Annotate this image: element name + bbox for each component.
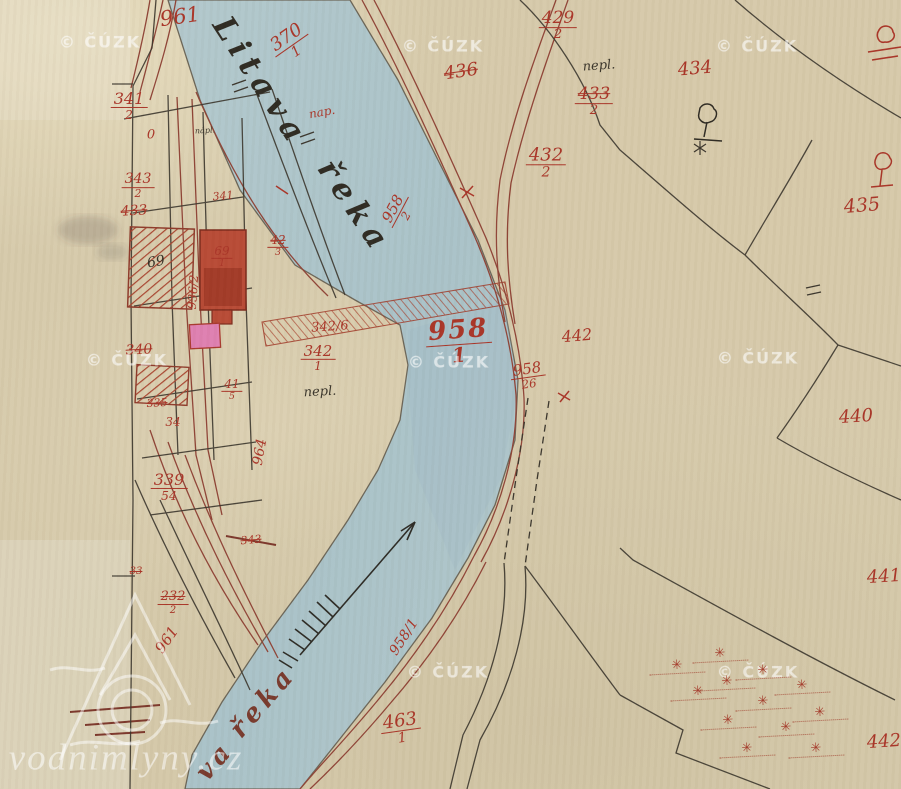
cuzk-watermark: © ČÚZK bbox=[408, 353, 490, 372]
parcel-label: 343 bbox=[240, 534, 262, 547]
parcel-label: 4322 bbox=[526, 146, 566, 179]
parcel-label: 961 bbox=[159, 4, 202, 30]
parcel-label: nápl. bbox=[195, 126, 216, 135]
parcel-label: 440 bbox=[838, 407, 874, 427]
parcel-label: 0 bbox=[147, 129, 155, 142]
parcel-label: 3421 bbox=[301, 344, 336, 372]
cuzk-watermark: © ČÚZK bbox=[717, 349, 799, 368]
parcel-label: 435 bbox=[843, 195, 881, 217]
parcel-label: 341 bbox=[212, 190, 234, 203]
parcel-label: 69 bbox=[146, 254, 166, 271]
parcel-label: 95826 bbox=[509, 360, 547, 393]
parcel-label: 4631 bbox=[379, 710, 424, 749]
parcel-label: 34 bbox=[165, 416, 180, 428]
parcel-label: nepl. bbox=[303, 385, 336, 400]
parcel-label: 936/2 bbox=[186, 274, 200, 309]
bush-icon: ✳ bbox=[670, 685, 727, 702]
bush-icon: ✳ bbox=[788, 742, 845, 759]
bush-icon: ✳ bbox=[719, 742, 776, 759]
bush-icon: ✳ bbox=[649, 659, 706, 676]
bush-icon: ✳ bbox=[792, 706, 849, 723]
parcel-label: 4332 bbox=[575, 86, 613, 118]
parcel-label: 433 bbox=[120, 203, 147, 218]
bush-icon: ✳ bbox=[774, 679, 831, 696]
parcel-label: 3432 bbox=[122, 172, 155, 200]
cuzk-watermark: © ČÚZK bbox=[402, 37, 484, 56]
parcel-label: 415 bbox=[221, 378, 242, 402]
map-sheet: 961370142924364332434nepl.43543229582958… bbox=[0, 0, 901, 789]
parcel-label: 442 bbox=[561, 327, 593, 346]
parcel-label: 335 bbox=[146, 397, 168, 409]
parcel-label: 4292 bbox=[539, 10, 577, 42]
parcel-label: 3701 bbox=[265, 19, 317, 70]
cuzk-watermark: © ČÚZK bbox=[716, 37, 798, 56]
parcel-label: 423 bbox=[267, 234, 288, 258]
parcel-label: 434 bbox=[677, 59, 713, 80]
parcel-label: 3412 bbox=[111, 91, 148, 121]
cuzk-watermark: © ČÚZK bbox=[407, 663, 489, 682]
parcel-label: 441 bbox=[866, 567, 901, 587]
parcel-label: 33954 bbox=[151, 472, 188, 502]
bush-icon: ✳ bbox=[700, 714, 757, 731]
parcel-label: nepl. bbox=[582, 58, 616, 73]
parcel-label: 342/6 bbox=[311, 319, 349, 335]
parcel-label: 442 bbox=[866, 732, 901, 752]
parcel-label: 958/1 bbox=[387, 616, 421, 657]
cuzk-watermark: © ČÚZK bbox=[59, 33, 141, 52]
parcel-label: 691 bbox=[211, 245, 232, 269]
bush-icon: ✳ bbox=[758, 721, 815, 738]
parcel-label: 964 bbox=[251, 438, 269, 467]
bush-icon: ✳ bbox=[735, 695, 792, 712]
parcel-label: nap. bbox=[308, 104, 336, 120]
parcel-label: 436 bbox=[443, 61, 480, 84]
site-watermark: vodnimlyny.cz bbox=[9, 737, 244, 780]
cuzk-watermark: © ČÚZK bbox=[86, 351, 168, 370]
